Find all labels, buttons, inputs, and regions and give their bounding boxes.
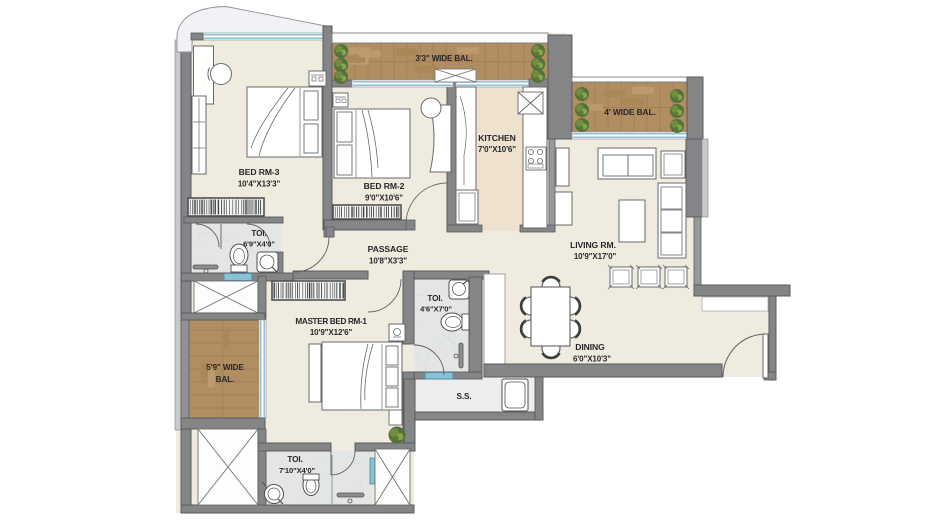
svg-text:6'9"X4'0": 6'9"X4'0" (243, 240, 275, 249)
svg-text:BED RM-2: BED RM-2 (364, 181, 405, 191)
svg-text:MASTER BED RM-1: MASTER BED RM-1 (295, 317, 367, 326)
svg-text:10'9"X12'6": 10'9"X12'6" (310, 328, 353, 337)
svg-text:BED RM-3: BED RM-3 (239, 167, 280, 177)
svg-text:S.S.: S.S. (456, 392, 471, 401)
svg-text:10'4"X13'3": 10'4"X13'3" (238, 180, 281, 189)
svg-text:3'3" WIDE BAL.: 3'3" WIDE BAL. (415, 54, 472, 63)
svg-text:TOI.: TOI. (251, 229, 266, 238)
svg-text:TOI.: TOI. (427, 294, 442, 303)
svg-text:10'9"X17'0": 10'9"X17'0" (574, 252, 617, 261)
svg-text:4' WIDE BAL.: 4' WIDE BAL. (604, 107, 656, 117)
svg-text:4'6"X7'0": 4'6"X7'0" (420, 305, 452, 314)
svg-text:7'10"X4'0": 7'10"X4'0" (279, 466, 315, 475)
svg-text:BAL.: BAL. (216, 375, 235, 384)
svg-text:DINING: DINING (575, 342, 605, 352)
svg-text:TOI.: TOI. (287, 455, 302, 464)
svg-text:PASSAGE: PASSAGE (368, 244, 409, 254)
svg-text:7'0"X10'6": 7'0"X10'6" (478, 145, 516, 154)
svg-text:5'9" WIDE: 5'9" WIDE (206, 363, 244, 372)
svg-text:9'0"X10'6": 9'0"X10'6" (365, 194, 403, 203)
svg-text:6'0"X10'3": 6'0"X10'3" (573, 355, 611, 364)
svg-text:LIVING RM.: LIVING RM. (570, 240, 616, 250)
svg-text:10'8"X3'3": 10'8"X3'3" (369, 257, 407, 266)
svg-text:KITCHEN: KITCHEN (478, 133, 516, 143)
